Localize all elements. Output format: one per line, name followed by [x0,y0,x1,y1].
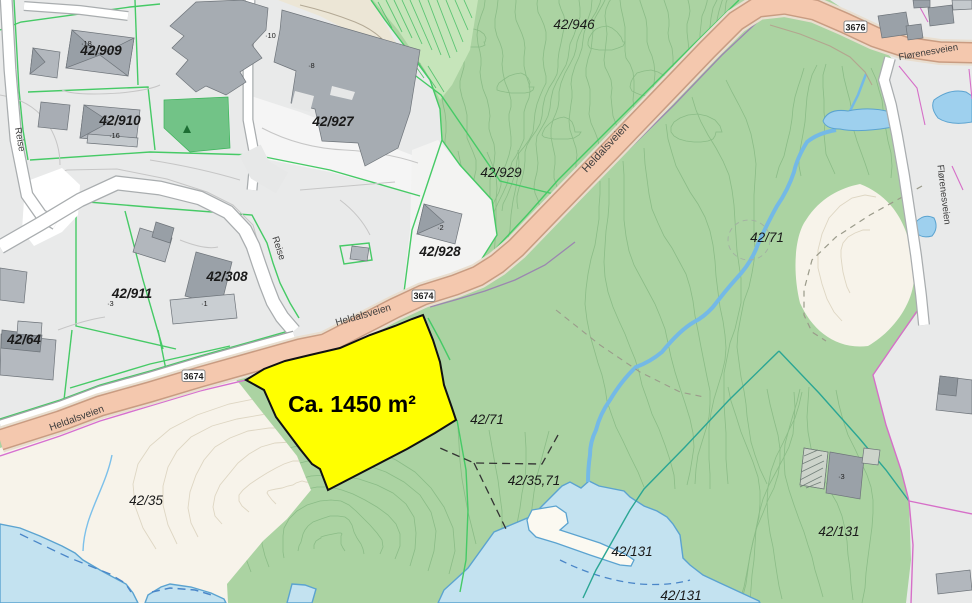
svg-text:3674: 3674 [183,372,203,382]
svg-text:42/929: 42/929 [480,165,522,180]
svg-text:·2: ·2 [437,223,444,232]
svg-text:·1: ·1 [201,299,208,308]
svg-text:42/927: 42/927 [311,114,355,129]
svg-text:·3: ·3 [838,472,845,481]
svg-text:42/64: 42/64 [6,332,41,347]
svg-text:3674: 3674 [413,291,433,301]
svg-text:42/131: 42/131 [611,544,652,559]
svg-text:42/131: 42/131 [818,524,859,539]
svg-text:·3: ·3 [107,299,114,308]
svg-text:42/911: 42/911 [111,286,152,301]
svg-text:42/71: 42/71 [750,230,784,245]
svg-text:42/35: 42/35 [129,493,163,508]
svg-text:42/928: 42/928 [418,244,461,259]
svg-text:3676: 3676 [845,23,865,33]
svg-text:42/131: 42/131 [660,588,701,603]
svg-text:42/71: 42/71 [470,412,504,427]
svg-text:·16: ·16 [109,131,120,140]
svg-text:42/910: 42/910 [98,113,141,128]
svg-text:·8: ·8 [308,61,315,70]
svg-text:42/35,71: 42/35,71 [508,473,561,488]
svg-text:Ca. 1450 m²: Ca. 1450 m² [288,391,416,417]
svg-text:42/946: 42/946 [553,17,595,32]
svg-text:42/308: 42/308 [205,269,248,284]
svg-text:·18: ·18 [81,39,92,48]
svg-text:·10: ·10 [265,31,276,40]
